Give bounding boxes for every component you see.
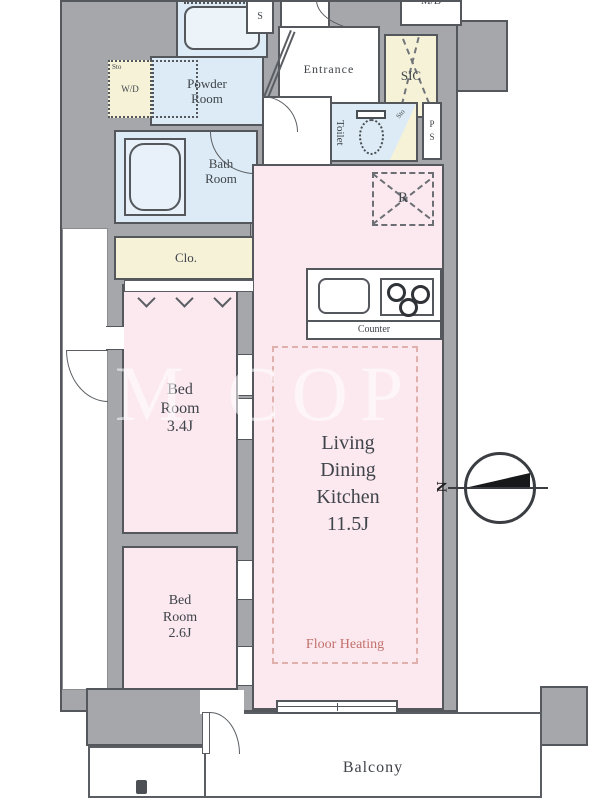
bedroom-1-label: Bed <box>167 381 193 400</box>
washing-machine-pan <box>152 60 198 118</box>
sliding-door <box>238 398 252 440</box>
bedroom-1-label: 3.4J <box>167 418 193 437</box>
ldk-label: Kitchen <box>260 484 436 511</box>
bedroom-2-label: 2.6J <box>169 626 192 643</box>
balcony-label: Balcony <box>343 759 403 778</box>
refrigerator-label: R <box>374 190 432 208</box>
floor-heating-label: Floor Heating <box>274 637 416 654</box>
entrance-label: Entrance <box>280 62 378 76</box>
closet-label: Clo. <box>175 250 197 265</box>
balcony: Balcony <box>204 712 542 798</box>
sliding-door <box>238 354 252 396</box>
bedroom-2-label: Room <box>163 610 197 627</box>
kitchen-sink-icon <box>318 278 370 314</box>
evacuation-hatch-icon <box>136 780 147 794</box>
window <box>106 326 124 350</box>
meter-box-label: M/B <box>402 0 460 8</box>
pipe-space-label: P <box>429 119 434 130</box>
balcony-door-opening <box>200 690 244 714</box>
bath-room-label: Room <box>186 171 256 186</box>
counter-strip: Counter <box>306 320 442 340</box>
bathtub-icon <box>124 138 186 216</box>
refrigerator-space: R <box>372 172 434 226</box>
outer-wall-top-right <box>456 20 508 92</box>
toilet-bowl-icon <box>359 119 384 155</box>
balcony-door-leaf <box>202 712 210 754</box>
pipe-space-label: S <box>429 132 434 143</box>
ldk-label: Dining <box>260 457 436 484</box>
toilet-sto-label: Sto <box>395 108 407 120</box>
floor-plan: Balcony S M/B Entrance SIC Powder Room S… <box>0 0 600 800</box>
bathtub-inner <box>129 143 181 211</box>
stove-icon <box>380 278 434 316</box>
balcony-pier-right <box>540 686 588 746</box>
hatch-bay <box>88 746 206 798</box>
toilet-tank-icon <box>356 110 386 119</box>
sliding-door <box>238 560 252 600</box>
bedroom-2: Bed Room 2.6J <box>122 546 238 690</box>
meter-box: M/B <box>400 0 462 26</box>
shaft-top: S <box>246 0 274 34</box>
washer-dryer-space: Sto W/D <box>108 60 152 118</box>
closet: Clo. <box>114 236 258 280</box>
balcony-pier-left <box>86 688 206 746</box>
washer-label: W/D <box>110 84 150 95</box>
bedroom-1: Bed Room 3.4J <box>122 284 238 534</box>
sliding-door <box>238 646 252 686</box>
counter-label: Counter <box>358 324 390 336</box>
shaft-top-label: S <box>257 11 263 23</box>
bedroom-2-label: Bed <box>169 593 192 610</box>
ldk-label: 11.5J <box>260 511 436 538</box>
compass: N <box>464 452 536 524</box>
sic-label: SIC <box>401 68 421 83</box>
pipe-space: P S <box>422 102 442 160</box>
washer-sto-label: Sto <box>112 63 121 71</box>
exterior-strip <box>62 228 108 690</box>
kitchen-counter <box>306 268 442 322</box>
toilet: Toilet Sto <box>330 102 418 162</box>
closet-door-track <box>124 280 254 292</box>
burner-icon <box>399 298 418 317</box>
ldk-label: Living <box>260 430 436 457</box>
bedroom-1-label: Room <box>160 400 199 419</box>
ldk-label-block: Living Dining Kitchen 11.5J <box>260 430 436 538</box>
sliding-window <box>276 700 398 714</box>
toilet-label: Toilet <box>333 107 346 159</box>
compass-axis-line <box>448 487 548 489</box>
sliding-window-tick <box>337 703 338 711</box>
compass-north-label: N <box>435 481 453 492</box>
